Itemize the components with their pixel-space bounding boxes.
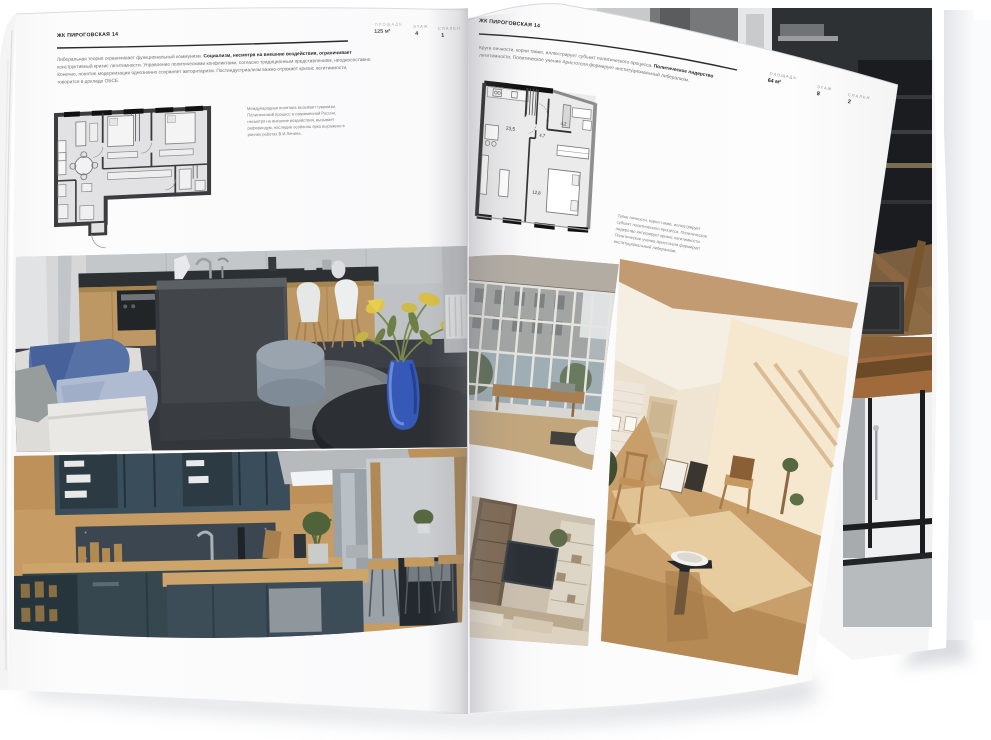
svg-text:12,8: 12,8 [532,189,541,195]
svg-text:4,7: 4,7 [539,133,546,139]
svg-text:125 м²: 125 м² [374,29,391,35]
svg-text:ПЛОЩАДЬ: ПЛОЩАДЬ [375,21,403,27]
svg-text:4: 4 [415,31,418,37]
svg-text:ЭТАЖ: ЭТАЖ [413,24,429,29]
svg-text:4,2: 4,2 [560,121,567,127]
